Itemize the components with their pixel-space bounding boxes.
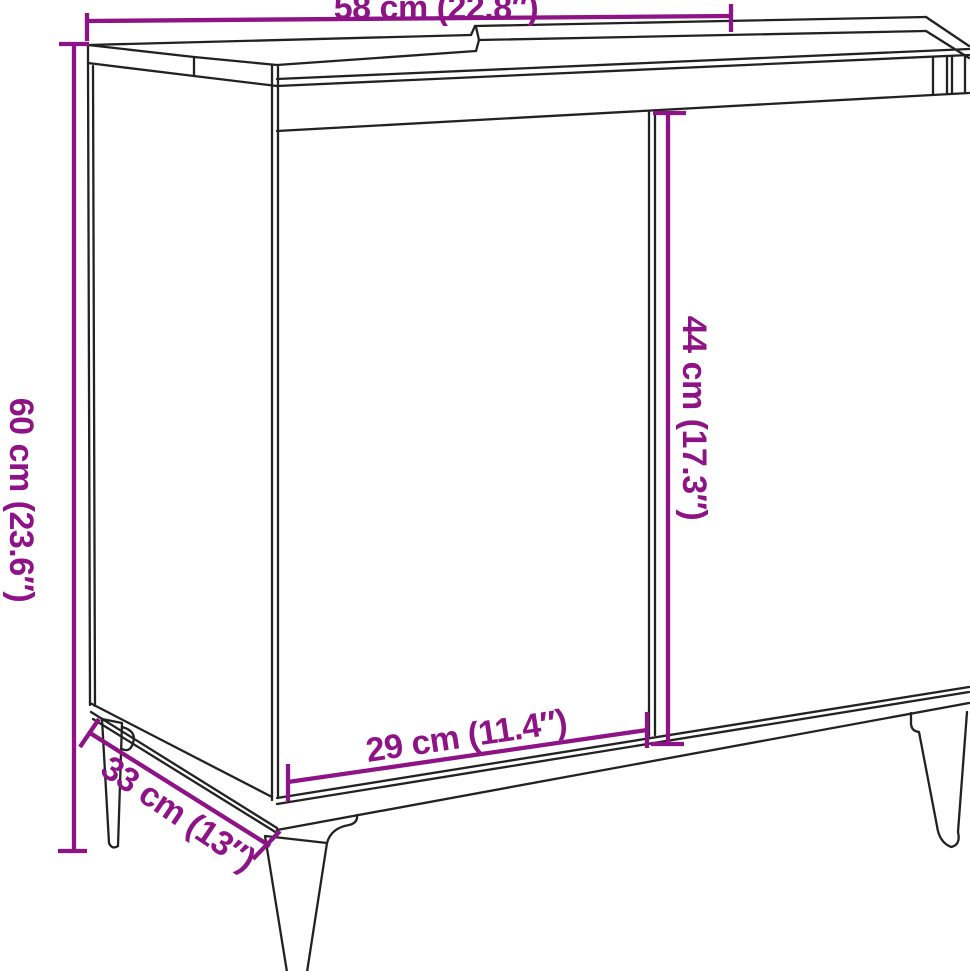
cabinet-line-drawing: 58 cm (22.8″) 60 cm (23.6″) 44 cm (17.3″…: [0, 0, 970, 971]
top-raised-front-edge: [479, 31, 926, 40]
dimension-door-height: 44 cm (17.3″): [651, 113, 713, 744]
counter-top: [88, 17, 969, 131]
top-step-front: [476, 27, 479, 40]
side-back-edge-outer: [88, 63, 90, 705]
leg-front-right: [911, 712, 967, 847]
dimension-label-total-height: 60 cm (23.6″): [2, 398, 40, 602]
top-left-wedge-upper: [88, 45, 277, 65]
top-right-edge-upper: [926, 17, 969, 46]
side-back-edge-inner: [93, 66, 95, 706]
top-bottom-edge: [277, 93, 969, 131]
product-dimension-diagram: 58 cm (22.8″) 60 cm (23.6″) 44 cm (17.3″…: [0, 0, 970, 971]
dimension-depth: 33 cm (13″): [80, 719, 280, 879]
doors: [272, 66, 969, 830]
top-left-wedge-lower: [88, 63, 277, 86]
dimension-label-top-width: 58 cm (22.8″): [334, 0, 538, 27]
top-back-edge-left: [88, 35, 471, 45]
left-side-panel: [88, 63, 277, 833]
leg-front-left: [265, 836, 327, 971]
top-front-edge-left: [277, 51, 476, 65]
top-right-edge-lower: [926, 31, 969, 58]
top-band-lower: [277, 55, 969, 86]
top-front-step: [476, 40, 479, 51]
dimension-label-door-height: 44 cm (17.3″): [675, 316, 713, 520]
top-band-upper: [277, 49, 969, 79]
top-step-back: [471, 26, 475, 35]
dimension-total-height: 60 cm (23.6″): [2, 44, 89, 851]
dimension-tick-start: [80, 719, 99, 747]
dimension-top-width: 58 cm (22.8″): [87, 0, 731, 41]
dimension-label-door-width: 29 cm (11.4″): [363, 702, 569, 770]
